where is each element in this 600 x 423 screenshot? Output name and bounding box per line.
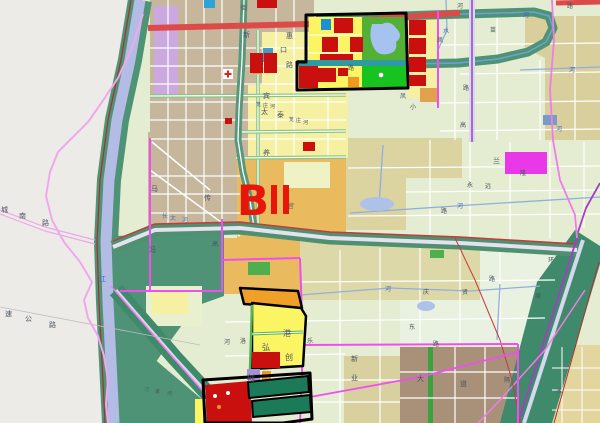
map-label: 远 bbox=[485, 182, 491, 190]
red-block bbox=[264, 53, 277, 73]
map-label: 兰 bbox=[493, 156, 500, 165]
orange-block bbox=[420, 88, 437, 102]
map-label: 宫 bbox=[288, 202, 294, 210]
map-label: 路 bbox=[49, 320, 56, 329]
map-label: 惠 bbox=[286, 31, 293, 40]
district1-red bbox=[334, 18, 353, 33]
map-label: 坡 bbox=[535, 292, 541, 300]
map-label: 贤 bbox=[462, 288, 468, 296]
map-label: 河 bbox=[385, 285, 391, 293]
map-label: 新 bbox=[351, 354, 358, 363]
map-label: 高 bbox=[460, 121, 466, 129]
district1-orange bbox=[348, 77, 359, 87]
map-label: 河 bbox=[182, 216, 188, 224]
map-label: 马 bbox=[151, 185, 158, 193]
map-label: 庆 bbox=[423, 288, 429, 296]
red-block bbox=[409, 20, 426, 35]
map-label: 河 bbox=[523, 11, 529, 19]
map-label: 河 bbox=[303, 119, 308, 126]
map-label: 南 bbox=[19, 211, 26, 220]
blue-facility-block bbox=[543, 115, 557, 125]
khaki-zone-a bbox=[344, 138, 462, 178]
map-label: 冯 bbox=[149, 246, 156, 254]
district1-sportsgreen bbox=[362, 64, 406, 87]
planning-map-canvas[interactable]: 街新惠口路宾笕庄河太泰笕庄河养马传长太河冯高宫速公路城南路江路路河水凤苗河路河河… bbox=[0, 0, 600, 423]
district3-dot bbox=[217, 405, 221, 409]
map-label: 河 bbox=[569, 66, 575, 74]
map-label: 太 bbox=[261, 107, 268, 116]
map-label: 水 bbox=[556, 387, 562, 395]
red-block bbox=[225, 118, 232, 124]
pond bbox=[417, 301, 435, 311]
red-block bbox=[250, 53, 263, 73]
map-label: 城 bbox=[1, 206, 8, 214]
map-label: 公 bbox=[25, 315, 32, 323]
map-label: 笕 bbox=[256, 101, 261, 108]
map-label: 凤 bbox=[437, 37, 443, 44]
map-label: 永 bbox=[467, 181, 473, 189]
brown-zone bbox=[400, 347, 518, 423]
map-label: 速 bbox=[5, 310, 12, 318]
map-label: 河 bbox=[270, 103, 275, 110]
map-label: 刁 bbox=[144, 387, 149, 393]
district3-red bbox=[205, 381, 252, 423]
map-label: 家 bbox=[155, 388, 160, 395]
map-label: 苗 bbox=[490, 26, 496, 34]
red-block bbox=[409, 75, 426, 86]
map-label: 河 bbox=[556, 125, 562, 133]
district3-dot bbox=[213, 394, 217, 398]
map-label: 街 bbox=[241, 4, 247, 12]
map-label: 大 bbox=[417, 374, 424, 383]
district1-red bbox=[338, 68, 348, 76]
map-label: B bbox=[237, 176, 269, 225]
map-label: 水 bbox=[443, 27, 449, 35]
map-label: 路 bbox=[348, 64, 354, 72]
red-block bbox=[257, 0, 277, 8]
map-label: 路 bbox=[286, 60, 293, 69]
green-blob bbox=[430, 250, 444, 258]
planning-map[interactable]: 街新惠口路宾笕庄河太泰笕庄河养马传长太河冯高宫速公路城南路江路路河水凤苗河路河河… bbox=[0, 0, 600, 423]
map-label: 路 bbox=[441, 207, 447, 215]
district1-red bbox=[318, 68, 336, 82]
map-label: 太 bbox=[170, 214, 176, 222]
map-label: 隔 bbox=[504, 376, 510, 384]
yellow-hole bbox=[152, 292, 188, 314]
brown-green-stripe bbox=[428, 347, 433, 423]
map-label: 环 bbox=[548, 257, 554, 264]
bii-bar bbox=[271, 185, 277, 214]
map-label: 乐 bbox=[307, 338, 313, 345]
map-label: 新 bbox=[243, 30, 250, 39]
map-label: 隆 bbox=[520, 169, 526, 177]
magenta-boundary bbox=[300, 344, 518, 345]
map-label: 河 bbox=[167, 390, 172, 397]
district3-dot bbox=[226, 391, 230, 395]
district1-blue bbox=[321, 19, 331, 30]
red-arterial-road bbox=[556, 2, 600, 3]
hospital-cross-h bbox=[225, 73, 232, 75]
map-label: 道 bbox=[460, 379, 467, 388]
district1-red bbox=[350, 37, 363, 52]
district1-red bbox=[320, 54, 353, 60]
map-label: 路 bbox=[463, 84, 469, 92]
map-label: 创 bbox=[247, 373, 255, 383]
purple-zone bbox=[154, 6, 178, 96]
map-label: 长 bbox=[162, 212, 168, 220]
aqua-block bbox=[204, 0, 215, 8]
map-label: 河 bbox=[224, 338, 230, 346]
map-label: 创 bbox=[285, 352, 293, 362]
map-label: 笕 bbox=[289, 116, 294, 123]
district1-red bbox=[322, 37, 338, 52]
map-label: 东 bbox=[409, 323, 415, 331]
map-label: 河 bbox=[457, 202, 463, 210]
map-label: 业 bbox=[351, 373, 358, 382]
map-label: 凤 bbox=[400, 93, 406, 100]
red-block bbox=[409, 57, 426, 72]
map-label: 河 bbox=[457, 2, 463, 10]
map-label: 泰 bbox=[277, 110, 284, 119]
map-label: 路 bbox=[42, 218, 49, 227]
map-label: 江 bbox=[99, 275, 106, 283]
map-label: 口 bbox=[280, 46, 287, 54]
red-block bbox=[303, 142, 315, 151]
red-block bbox=[409, 38, 426, 54]
green-blob bbox=[248, 262, 270, 275]
pond bbox=[360, 197, 394, 211]
map-label: 小 bbox=[410, 103, 416, 111]
map-label: 路 bbox=[567, 2, 573, 10]
map-label: 路 bbox=[489, 275, 495, 283]
map-label: 高 bbox=[212, 240, 218, 248]
map-label: 庄 bbox=[296, 117, 301, 124]
pale-patch bbox=[284, 162, 330, 188]
map-label: 路 bbox=[433, 340, 439, 348]
map-label: 洛 bbox=[240, 337, 246, 345]
map-label: 传 bbox=[204, 193, 211, 202]
map-label: 港 bbox=[283, 328, 291, 338]
map-label: 弘 bbox=[262, 343, 270, 352]
stadium-marker bbox=[379, 73, 384, 78]
district2-red bbox=[252, 352, 280, 368]
map-label: 宾 bbox=[263, 91, 270, 100]
map-label: 养 bbox=[263, 148, 270, 157]
district1-red-notch bbox=[299, 66, 318, 88]
